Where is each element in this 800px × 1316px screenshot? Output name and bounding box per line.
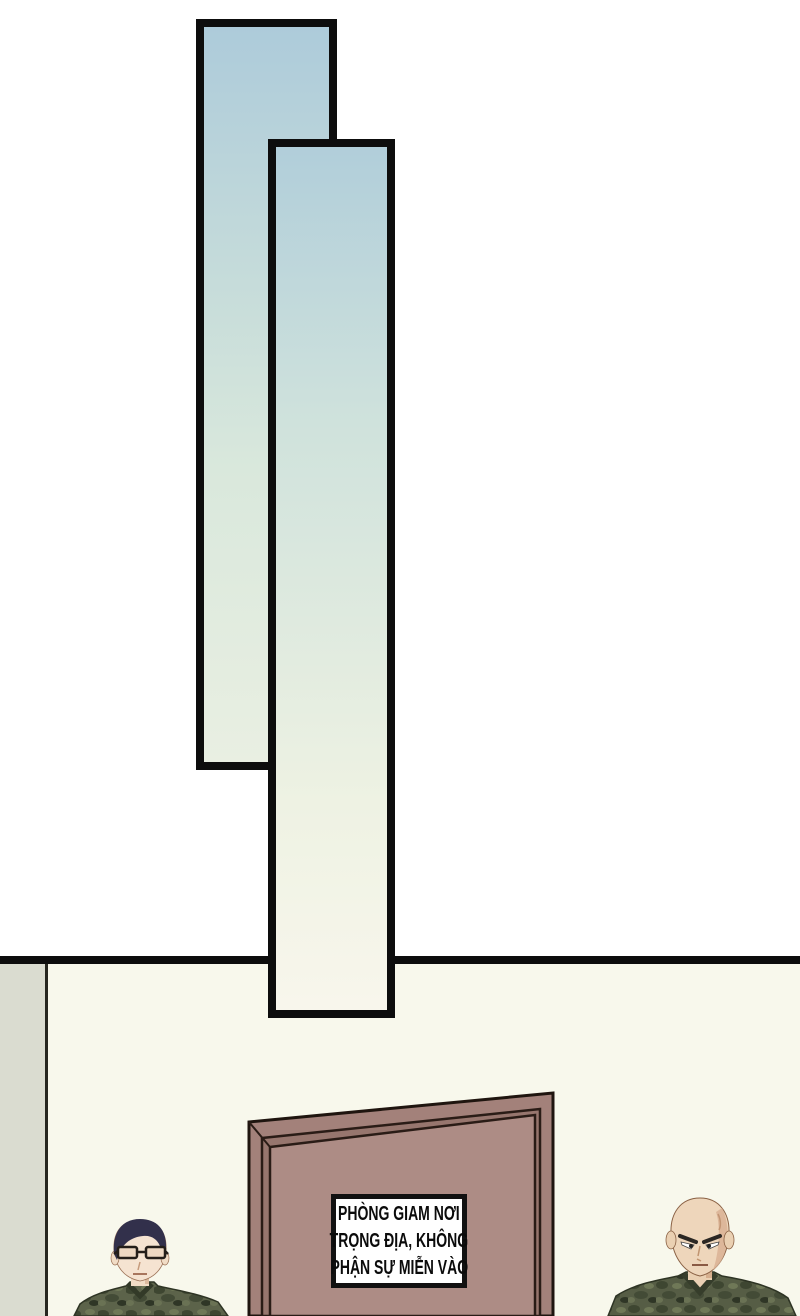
- guard-right-pupil: [707, 1244, 711, 1248]
- guard-right-ear: [666, 1231, 676, 1249]
- comic-page: PHÒNG GIAM NƠI TRỌNG ĐỊA, KHÔNG PHẬN SỰ …: [0, 0, 800, 1316]
- guard-right-pupil: [689, 1244, 693, 1248]
- sign-line-1: PHÒNG GIAM NƠI: [338, 1201, 460, 1228]
- sign-line-3: PHẬN SỰ MIỄN VÀO: [330, 1255, 468, 1282]
- side-wall-corner: [0, 964, 48, 1316]
- gradient-panel-front: [268, 139, 395, 1018]
- floor-line: [0, 956, 800, 964]
- guard-left: [70, 1212, 240, 1316]
- guard-right-ear: [724, 1231, 734, 1249]
- sign-line-2: TRỌNG ĐỊA, KHÔNG: [330, 1228, 468, 1255]
- door-warning-sign: PHÒNG GIAM NƠI TRỌNG ĐỊA, KHÔNG PHẬN SỰ …: [331, 1194, 467, 1288]
- guard-right: [600, 1184, 800, 1316]
